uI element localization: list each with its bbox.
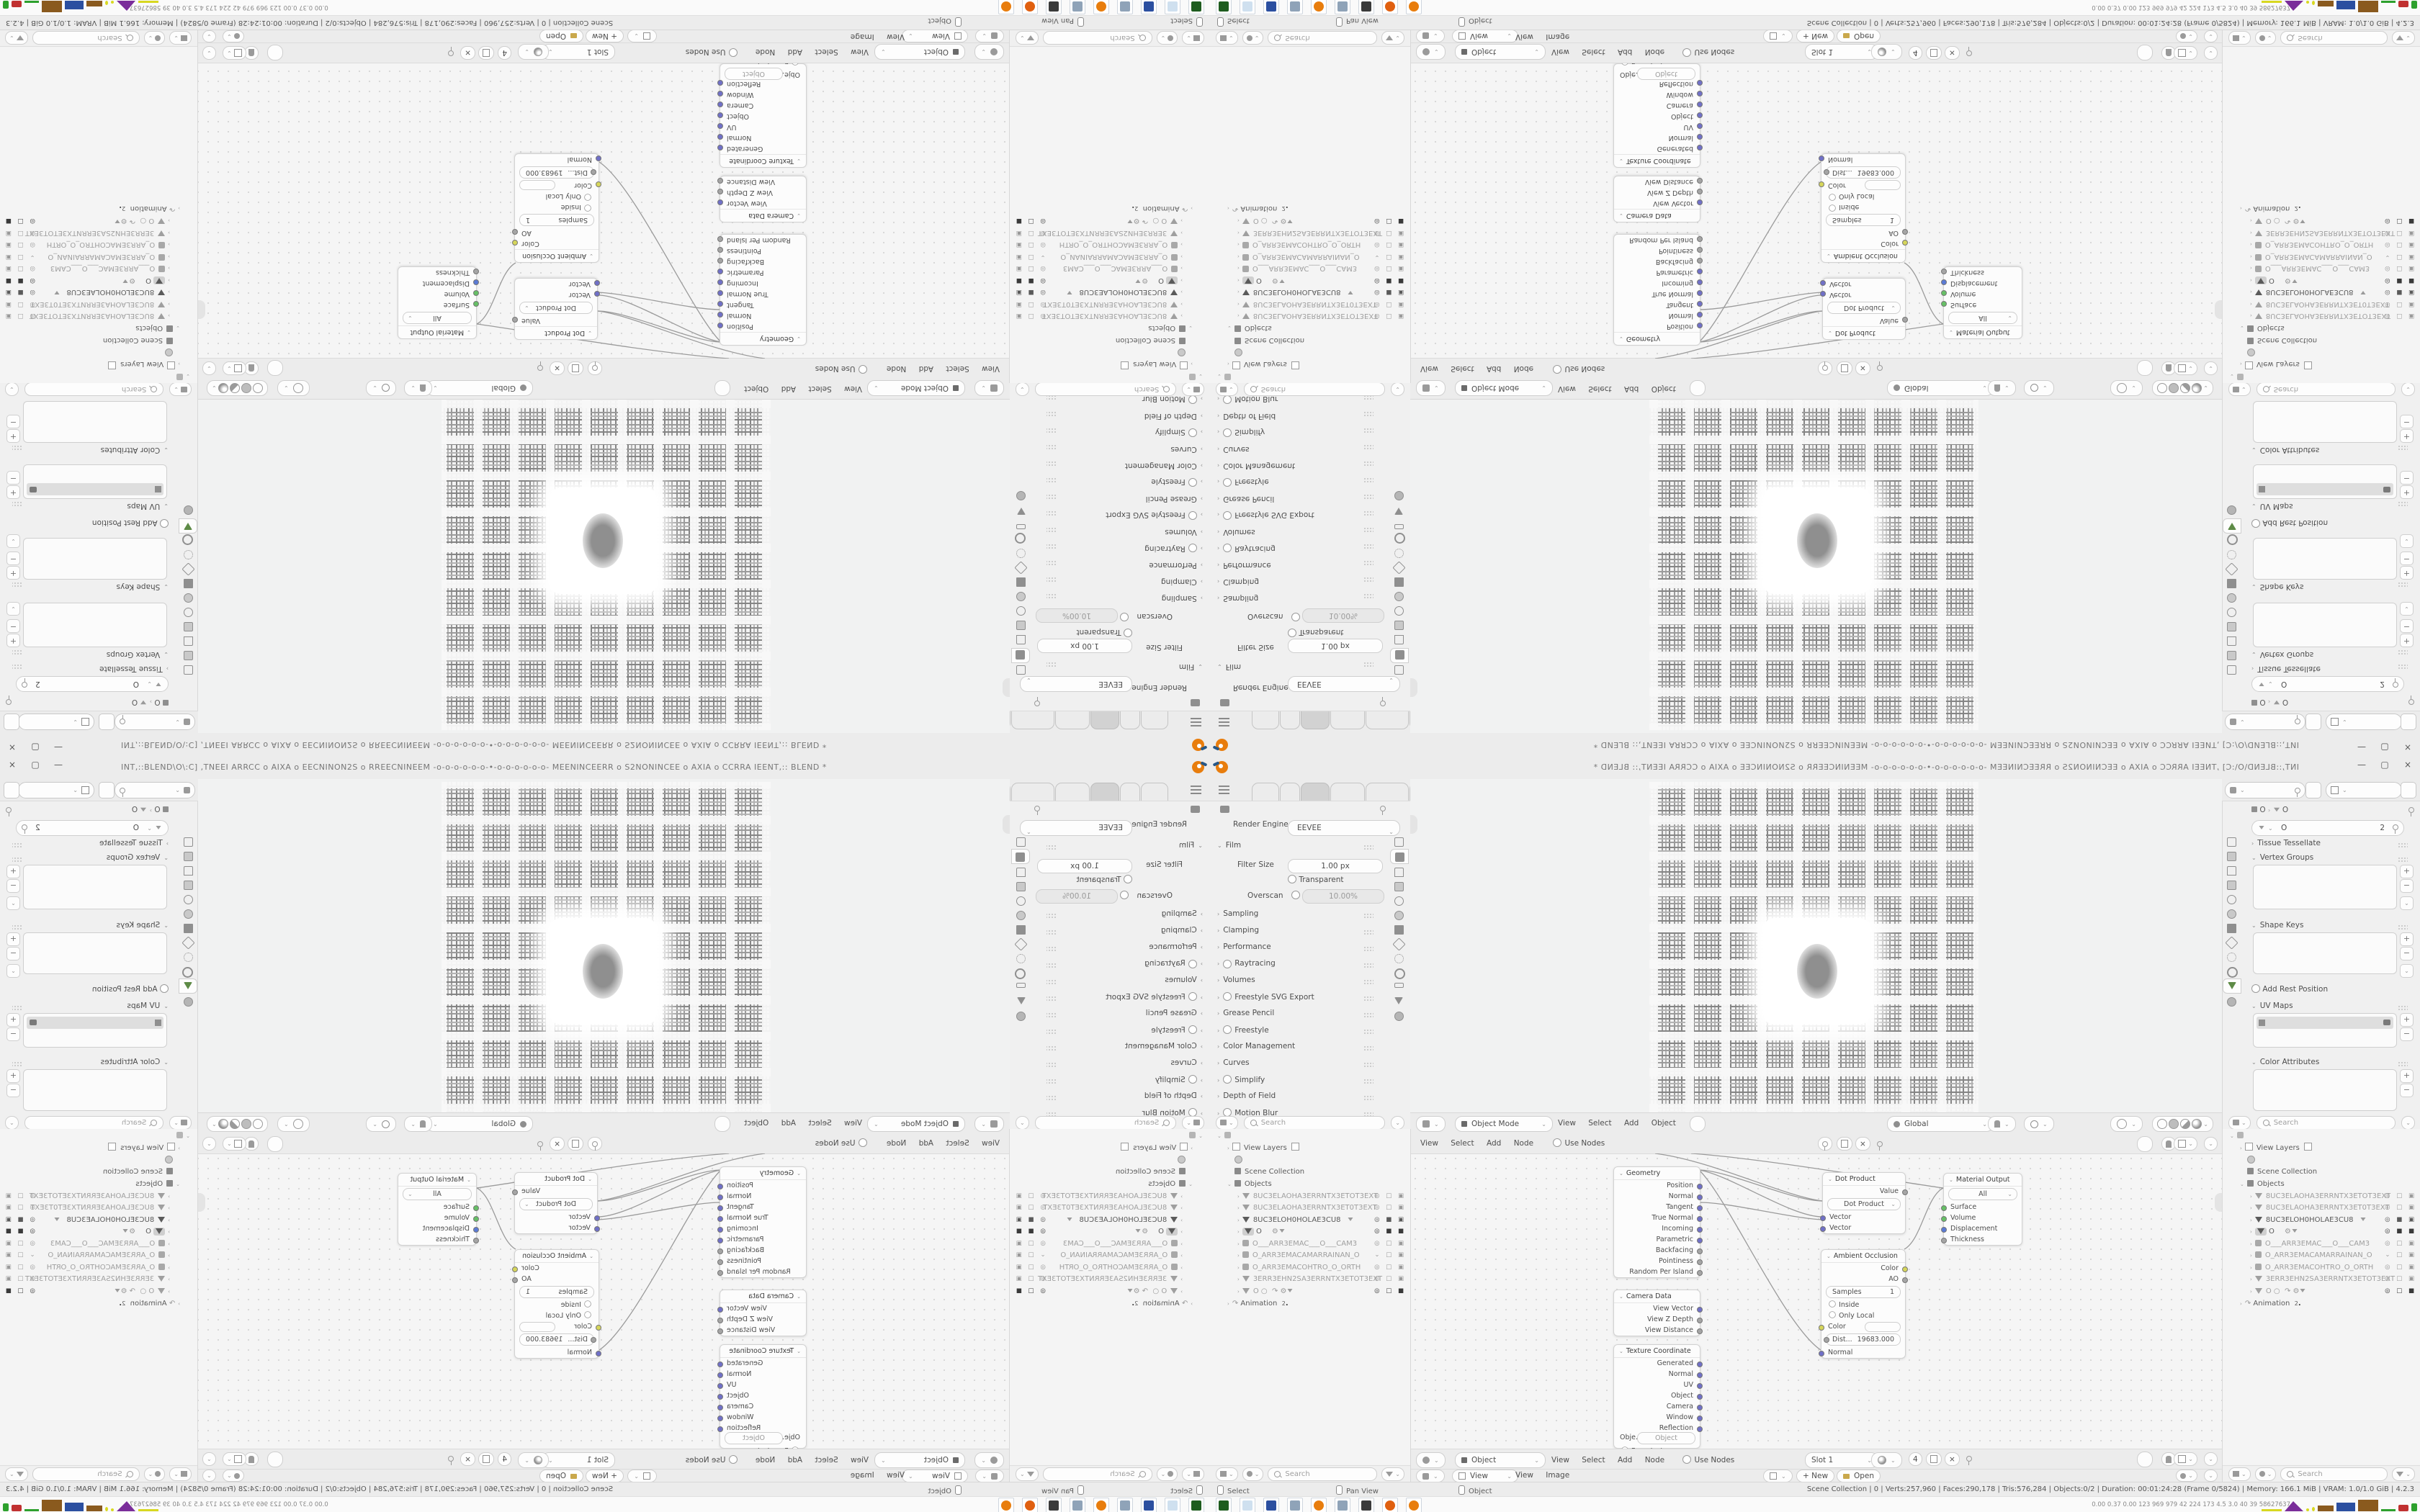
render-engine-select[interactable]: EEVEE⌄ <box>1288 820 1400 836</box>
tool-tab-icon[interactable] <box>180 834 197 848</box>
image-options-button[interactable]: ⌄ <box>2204 30 2218 42</box>
taskbar-app-blender[interactable] <box>1311 0 1327 14</box>
options-button[interactable]: ⌄ <box>1016 383 1029 397</box>
taskbar-app-blender2[interactable] <box>1406 0 1422 14</box>
mesh-name-field[interactable]: ⌄ O 2 <box>2251 676 2404 692</box>
breadcrumb-data[interactable]: O <box>2282 698 2288 706</box>
particles-tab-icon[interactable] <box>2223 950 2240 963</box>
outliner-root[interactable]: ⌄ <box>1013 369 1206 380</box>
open-image-button[interactable]: Open <box>1837 1470 1881 1482</box>
taskbar-app-calculator[interactable] <box>1287 0 1303 14</box>
outliner-object-row[interactable]: ›8UC3ELOH0HOLAE3CU8◎ ■ ▣ <box>1234 1216 1407 1227</box>
taskbar-app-blender[interactable] <box>1093 1498 1109 1512</box>
shape-key-specials-button[interactable]: ⌄ <box>2400 534 2414 548</box>
workspace-tab-active[interactable] <box>1301 783 1330 801</box>
panel-section[interactable]: ›Color Management <box>1217 1042 1379 1055</box>
taskbar-app-monitor[interactable] <box>1358 1498 1374 1512</box>
world-row[interactable] <box>2 346 173 356</box>
sidebar-toggle[interactable] <box>198 300 205 319</box>
panel-section[interactable]: ›Depth of Field <box>1041 408 1203 420</box>
vertex-group-specials-button[interactable]: ⌄ <box>6 602 20 616</box>
ao-samples-field[interactable]: Samples1 <box>519 1286 594 1298</box>
menu-add[interactable]: Add <box>1618 1456 1632 1464</box>
scene-tab-icon[interactable] <box>180 606 197 620</box>
overscan-field[interactable]: 10.00% <box>1302 608 1384 623</box>
image-view-mode-select[interactable]: View⌄ <box>902 1470 968 1482</box>
menu-select[interactable]: Select <box>1451 1139 1474 1148</box>
vertex-group-specials-button[interactable]: ⌄ <box>2400 602 2414 616</box>
output-tab-icon[interactable] <box>1013 865 1030 878</box>
search-input[interactable]: Search <box>24 383 164 397</box>
add-rest-position-toggle[interactable]: Add Rest Position <box>2251 515 2414 528</box>
taskbar-app-blender2[interactable] <box>1406 1498 1422 1512</box>
taskbar-app-monitor[interactable] <box>1046 0 1062 14</box>
outliner-object-row[interactable]: ›O ○ ↷ ⚙◎ □ ■ <box>2 1287 173 1298</box>
outliner-root[interactable]: ⌄ <box>2227 1132 2418 1143</box>
outliner-object-row-selected[interactable]: › O⚙◎ ■ ■ <box>1013 274 1186 284</box>
pin-icon[interactable] <box>1380 701 1386 706</box>
snapping-button[interactable] <box>244 46 259 60</box>
pin-icon[interactable] <box>537 365 543 371</box>
filter-size-field[interactable]: 1.00 px <box>1037 639 1132 653</box>
node-dot-product[interactable]: ⌄Dot Product Value Dot Product⌄ Vector V… <box>514 278 598 340</box>
new-image-button[interactable]: + New <box>586 30 624 42</box>
add-rest-position-toggle[interactable]: Add Rest Position <box>2251 984 2414 997</box>
node-ambient-occlusion[interactable]: ⌄Ambient Occlusion Color AO Samples1 Ins… <box>514 153 599 263</box>
menu-node[interactable]: Node <box>1514 1139 1533 1148</box>
panel-section[interactable]: ›Curves <box>1041 1058 1203 1071</box>
outliner-object-row[interactable]: ›8UC3ELAOHA3ERRNTX3ETOT3EXT◎ □ ▣ <box>1013 309 1186 320</box>
material-unlink-button[interactable]: × <box>1945 46 1960 60</box>
use-nodes-toggle[interactable]: Use Nodes <box>815 1139 856 1148</box>
options-button[interactable]: ⌄ <box>2401 383 2415 397</box>
view-layer-selector[interactable]: ⌄ <box>2326 714 2402 730</box>
overscan-field[interactable]: 10.00% <box>1036 889 1118 904</box>
use-nodes-toggle[interactable]: Use Nodes <box>1694 1456 1734 1464</box>
outliner-object-row[interactable]: ›O ○ ↷ ⚙◎ □ ■ <box>1013 214 1186 225</box>
node-texture-coordinate[interactable]: ⌄Texture Coordinate Generated Normal UV … <box>720 63 807 168</box>
options-button[interactable]: ⌄ <box>2204 361 2218 375</box>
filter-mode-button[interactable]: ⌄ <box>1157 32 1178 45</box>
proportional-edit-button[interactable]: ⌄ <box>366 380 396 396</box>
image-options-button[interactable]: ⌄ <box>202 30 216 42</box>
animation-row[interactable]: ›↷ Animation 2. <box>2 202 183 212</box>
menu-add[interactable]: Add <box>788 48 802 56</box>
outliner-object-row[interactable]: ›8UC3ELAOHA3ERRNTX3ETOT3EXT◎ □ ▣ <box>1013 1192 1186 1203</box>
uv-maps-list[interactable] <box>2253 1013 2397 1048</box>
gizmo-toggle[interactable] <box>267 360 283 376</box>
taskbar-app-notepad[interactable] <box>1165 0 1180 14</box>
node-geometry[interactable]: ⌄Geometry Position Normal Tangent True N… <box>1613 234 1700 346</box>
world-row[interactable] <box>1013 346 1186 356</box>
pin-icon[interactable] <box>2295 788 2300 793</box>
modifiers-tab-icon[interactable] <box>1013 562 1030 575</box>
outliner-camera-row[interactable]: ›O___ARR3EMAC___O___CAM3◎ □ ▣ <box>1234 1240 1407 1251</box>
outliner-object-row[interactable]: ›8UC3ELAOHA3ERRNTX3ET0T3EXT◎ □ ▣ <box>2 1204 173 1215</box>
panel-section[interactable]: ›Performance <box>1217 557 1379 570</box>
physics-tab-icon[interactable] <box>2223 534 2240 548</box>
film-panel-header[interactable]: ⌄Film <box>1041 658 1203 671</box>
options-button[interactable]: ⌄ <box>2204 1452 2218 1466</box>
search-input[interactable]: Search <box>32 1467 140 1481</box>
object-tab-icon[interactable] <box>180 921 197 935</box>
search-input[interactable]: Search <box>1035 383 1177 397</box>
panel-section[interactable]: ⌄Color Attributes <box>2251 441 2414 454</box>
wireframe-shading-icon[interactable] <box>253 1119 263 1129</box>
outliner-object-row[interactable]: ›3ERR3EHN2SA3ERRNTX3ETOT3EXT◎ □ ▣ <box>1013 1275 1186 1286</box>
menu-node[interactable]: Node <box>756 1456 775 1464</box>
close-button[interactable]: × <box>4 760 20 770</box>
tool-tab-icon[interactable] <box>1013 834 1030 848</box>
uv-map-row[interactable] <box>27 1017 163 1029</box>
menu-node[interactable]: Node <box>887 364 906 373</box>
image-options-button[interactable]: ⌄ <box>202 1470 216 1482</box>
uv-maps-list[interactable] <box>23 1013 167 1048</box>
outliner-object-row[interactable]: ›8UC3ELAOHA3ERRNTX3ET0T3EXT◎ □ ▣ <box>1013 1204 1186 1215</box>
display-mode-button[interactable]: ⌄ <box>1182 32 1204 45</box>
texcoord-object-field[interactable]: Object <box>725 68 783 80</box>
sidebar-toggle[interactable] <box>2215 1193 2222 1212</box>
editor-type-button[interactable]: ⌄ <box>974 380 1004 396</box>
breadcrumb-object[interactable]: O <box>2259 806 2265 814</box>
pin-icon[interactable] <box>1966 50 1972 56</box>
outliner-object-row[interactable]: ›3ERR3EHN2SA3ERRNTX3ETOT3EXT◎ □ ▣ <box>2 1275 173 1286</box>
viewlayer-tab-icon[interactable] <box>1390 619 1407 633</box>
render-tab-icon[interactable] <box>2223 849 2240 863</box>
render-tab-icon[interactable] <box>1390 648 1409 663</box>
workspace-tab[interactable] <box>1055 783 1090 801</box>
menu-add[interactable]: Add <box>788 1456 802 1464</box>
panel-section[interactable]: ›Curves <box>1217 1058 1379 1071</box>
material-tab-icon[interactable] <box>1013 490 1030 503</box>
film-panel-header[interactable]: ⌄Film <box>1217 658 1379 671</box>
panel-section[interactable]: ›Depth of Field <box>1041 1092 1203 1104</box>
panel-section[interactable]: ›Clamping <box>1041 926 1203 939</box>
data-tab-icon[interactable] <box>1390 994 1407 1008</box>
panel-section[interactable]: ›Volumes <box>1217 976 1379 989</box>
data-tab-icon[interactable] <box>1013 994 1030 1008</box>
color-attributes-list[interactable] <box>2253 401 2397 443</box>
shape-keys-list[interactable] <box>2253 932 2397 974</box>
ao-color-field[interactable] <box>519 1322 555 1332</box>
add-vertex-group-button[interactable]: + <box>2400 634 2414 647</box>
menu-view[interactable]: View <box>1515 1471 1533 1480</box>
menu-select[interactable]: Select <box>1582 1456 1605 1464</box>
outliner-object-row[interactable]: ›8UC3ELAOHA3ERRNTX3ET0T3EXT◎ □ ▣ <box>1234 1204 1407 1215</box>
object-tab-icon[interactable] <box>1390 922 1407 936</box>
outliner-object-row[interactable]: ›8UC3ELOH0HOLAE3CU8◎ ■ ▣ <box>1013 285 1186 296</box>
physics-tab-icon[interactable] <box>180 534 197 548</box>
slot-select[interactable]: Slot 1⌄ <box>1805 1452 1878 1468</box>
material-browse-button[interactable]: ⌄ <box>1871 44 1902 60</box>
viewlayer-tab-icon[interactable] <box>1390 879 1407 893</box>
editor-type-button[interactable]: ⌄ <box>974 1452 1004 1468</box>
options-button[interactable]: ⌄ <box>1391 383 1404 397</box>
filter-button[interactable]: ⌄ <box>1381 1467 1404 1481</box>
material-unlink-button[interactable]: × <box>1855 1137 1870 1151</box>
render-tab-icon[interactable] <box>2223 649 2240 663</box>
taskbar-app-terminal[interactable] <box>1188 1498 1204 1512</box>
tool-tab-icon[interactable] <box>2223 834 2240 848</box>
node-camera-data[interactable]: ⌄Camera Data View Vector View Z Depth Vi… <box>720 1290 807 1336</box>
panel-section[interactable]: ›Simplify <box>1041 424 1203 437</box>
outliner-object-row[interactable]: ›8UC3ELOH0HOLAE3CU8◎ ■ ▣ <box>1234 285 1407 296</box>
menu-view[interactable]: View <box>844 1119 862 1128</box>
shield-icon[interactable] <box>2393 682 2398 688</box>
material-copy-button[interactable] <box>1837 1137 1852 1151</box>
viewlayer-tab-icon[interactable] <box>2223 621 2240 634</box>
node-material-output[interactable]: ⌄Material Output All⌄ Surface Volume Dis… <box>398 1173 477 1246</box>
taskbar-app-calculator2[interactable] <box>1335 0 1350 14</box>
image-browse-button[interactable]: ⌄ <box>1763 30 1793 42</box>
texcoord-object-field[interactable]: Object <box>725 1432 783 1444</box>
color-attributes-list[interactable] <box>2253 1069 2397 1111</box>
search-input[interactable]: Search <box>2280 32 2388 45</box>
particles-tab-icon[interactable] <box>2223 549 2240 562</box>
search-input[interactable]: Search <box>2280 1467 2388 1481</box>
vertex-groups-list[interactable] <box>2253 603 2397 647</box>
shape-keys-list[interactable] <box>23 538 167 580</box>
panel-section[interactable]: ›Grease Pencil <box>1041 1009 1203 1022</box>
constraints-tab-icon[interactable] <box>1390 518 1407 532</box>
menu-view[interactable]: View <box>1551 48 1569 56</box>
world-row[interactable] <box>1013 1156 1186 1166</box>
search-input[interactable]: Search <box>2257 1116 2396 1130</box>
image-browse-button[interactable]: ⌄ <box>627 30 657 42</box>
gizmo-toggle[interactable] <box>2137 1452 2153 1467</box>
material-unlink-button[interactable]: × <box>550 1137 565 1151</box>
search-input[interactable]: Search <box>24 1116 164 1130</box>
mode-select[interactable]: Object Mode⌄ <box>1455 1116 1553 1132</box>
scene-collection-row[interactable]: Scene Collection <box>2 1168 173 1179</box>
menu-image[interactable]: Image <box>851 1471 874 1480</box>
panel-section[interactable]: ›Grease Pencil <box>1217 1009 1379 1022</box>
taskbar-app-calculator2[interactable] <box>1070 0 1085 14</box>
data-tab-icon[interactable] <box>179 978 197 994</box>
render-tab-icon[interactable] <box>180 849 197 863</box>
filter-button[interactable]: ⌄ <box>1016 1467 1039 1481</box>
material-tab-icon[interactable] <box>180 994 197 1008</box>
ao-color-field[interactable] <box>1865 1322 1901 1332</box>
transform-orientation-select[interactable]: Global⌄ <box>426 1116 533 1132</box>
display-mode-button[interactable]: ⌄ <box>1182 1116 1204 1130</box>
menu-node[interactable]: Node <box>1514 364 1533 373</box>
panel-section[interactable]: ›Grease Pencil <box>1217 490 1379 503</box>
panel-section[interactable]: ›Clamping <box>1217 926 1379 939</box>
solid-shading-icon[interactable] <box>2169 1119 2179 1129</box>
material-tab-icon[interactable] <box>2223 994 2240 1008</box>
scene-selector[interactable]: ⌄ <box>115 714 195 730</box>
node-material-output[interactable]: ⌄Material Output All⌄ Surface Volume Dis… <box>1943 266 2022 339</box>
shader-context-select[interactable]: Object⌄ <box>1455 1452 1546 1468</box>
panel-section[interactable]: ›Color Management <box>1041 457 1203 470</box>
use-nodes-toggle[interactable]: Use Nodes <box>1564 1139 1605 1148</box>
pin-icon[interactable] <box>1877 1141 1883 1147</box>
outliner-camera-row[interactable]: ›O___ARR3EMAC___O___CAM3◎ □ ▣ <box>1013 1240 1186 1251</box>
outliner-root[interactable]: ⌄ <box>1214 1132 1407 1143</box>
maximize-button[interactable]: ▢ <box>2377 742 2393 752</box>
display-mode-button[interactable]: ⌄ <box>1216 32 1238 45</box>
view-layer-selector[interactable]: ⌄ <box>18 714 94 730</box>
menu-add[interactable]: Add <box>1487 364 1501 373</box>
node-camera-data[interactable]: ⌄Camera Data View Vector View Z Depth Vi… <box>1613 176 1700 222</box>
output-tab-icon[interactable] <box>1013 634 1030 647</box>
filter-size-field[interactable]: 1.00 px <box>1037 859 1132 873</box>
tool-options-button[interactable] <box>1690 1116 1706 1132</box>
shuffle-button[interactable]: ⌄ <box>223 1470 244 1482</box>
search-input[interactable]: Search <box>1244 383 1386 397</box>
menu-view[interactable]: View <box>1420 1139 1438 1148</box>
outliner-object-row[interactable]: ›8UC3ELAOHA3ERRNTX3ETOT3EXT◎ □ ▣ <box>2247 309 2418 320</box>
shuffle-button[interactable]: ⌄ <box>2176 30 2197 42</box>
constraints-tab-icon[interactable] <box>1390 980 1407 994</box>
remove-shape-key-button[interactable]: − <box>2400 947 2414 960</box>
close-button[interactable]: × <box>4 742 20 752</box>
users-count-button[interactable]: 2 <box>35 821 40 835</box>
outliner-camera-row[interactable]: ›O_ARR3EMACOHTRO_O_ORTH◎ □ ▣ <box>2247 1264 2418 1274</box>
scene-collection-row[interactable]: Scene Collection <box>2247 1168 2418 1179</box>
shape-key-specials-button[interactable]: ⌄ <box>6 534 20 548</box>
overlays-button[interactable]: ⌄ <box>277 380 310 396</box>
solid-shading-icon[interactable] <box>241 1119 251 1129</box>
outliner-object-row[interactable]: ›8UC3ELAOHA3ERRNTX3ET0T3EXT◎ □ ▣ <box>1013 297 1186 308</box>
workspace-tab[interactable] <box>1011 711 1054 729</box>
color-attributes-list[interactable] <box>23 1069 167 1111</box>
filter-mode-button[interactable]: ⌄ <box>1242 32 1264 45</box>
outliner-camera-row[interactable]: ›O_ARR3EMACOHTRO_O_ORTH◎ □ ▣ <box>1013 1264 1186 1274</box>
panel-section[interactable]: ›Freestyle SVG Export <box>1217 992 1379 1005</box>
editor-type-button[interactable]: ⌄ <box>975 1470 1004 1482</box>
remove-vertex-group-button[interactable]: − <box>6 879 20 893</box>
outliner-camera-row[interactable]: ›O___ARR3EMAC___O___CAM3◎ □ ▣ <box>2247 1240 2418 1251</box>
ao-distance-field[interactable]: Dist...19683.000 <box>519 1333 594 1346</box>
uv-map-row[interactable] <box>27 483 163 495</box>
tool-tab-icon[interactable] <box>1013 664 1030 678</box>
texcoord-object-field[interactable]: Object <box>1637 68 1695 80</box>
panel-section[interactable]: ›Volumes <box>1217 523 1379 536</box>
outliner-object-row[interactable]: ›3ERR3EHN2SA3ERRNTX3ETOT3EXT◎ □ ▣ <box>2247 1275 2418 1286</box>
viewlayer-tab-icon[interactable] <box>1013 619 1030 633</box>
display-mode-button[interactable]: ⌄ <box>1182 1467 1204 1481</box>
render-engine-select[interactable]: EEVEE⌄ <box>1020 820 1132 836</box>
outliner-camera-row[interactable]: ›O_ARR3EMACAMARRAINAN_O⌄ □ ▣ <box>1234 250 1407 261</box>
data-tab-icon[interactable] <box>1013 504 1030 518</box>
material-copy-button[interactable] <box>568 1137 583 1151</box>
node-canvas[interactable]: ⌄Geometry Position Normal Tangent True N… <box>198 1153 1010 1449</box>
menu-object[interactable]: Object <box>1652 384 1676 393</box>
scene-tab-icon[interactable] <box>1013 894 1030 907</box>
outliner-object-row[interactable]: ›O ○ ↷ ⚙◎ □ ■ <box>2247 214 2418 225</box>
display-mode-button[interactable]: ⌄ <box>169 1467 192 1481</box>
material-shading-icon[interactable] <box>2180 1119 2190 1129</box>
remove-shape-key-button[interactable]: − <box>6 947 20 960</box>
outliner-object-row-selected[interactable]: › O⚙◎ ■ ■ <box>2247 1228 2418 1238</box>
panel-section[interactable]: ›Curves <box>1041 441 1203 454</box>
add-vertex-group-button[interactable]: + <box>6 634 20 647</box>
editor-type-button[interactable]: ⌄ <box>1416 380 1446 396</box>
maximize-button[interactable]: ▢ <box>27 742 43 752</box>
taskbar-app-notepad[interactable] <box>1240 1498 1255 1512</box>
open-image-button[interactable]: Open <box>1837 30 1881 42</box>
render-engine-select[interactable]: EEVEE⌄ <box>1288 676 1400 692</box>
overscan-toggle[interactable] <box>1120 891 1129 899</box>
menu-view[interactable]: View <box>1515 32 1533 41</box>
menu-object[interactable]: Object <box>1652 1119 1676 1128</box>
physics-tab-icon[interactable] <box>1013 966 1030 979</box>
data-tab-icon[interactable] <box>1390 504 1407 518</box>
search-input[interactable]: Search <box>1043 1467 1152 1481</box>
options-button[interactable]: ⌄ <box>5 1116 19 1130</box>
display-mode-button[interactable]: ⌄ <box>1216 383 1238 397</box>
menu-select[interactable]: Select <box>1588 1119 1611 1128</box>
output-target-select[interactable]: All⌄ <box>403 312 472 324</box>
editor-type-button[interactable]: ⌄ <box>1416 44 1446 60</box>
menu-view[interactable]: View <box>851 48 869 56</box>
outliner-camera-row[interactable]: ›O_ARR3EMACOHTRO_O_ORTH◎ □ ▣ <box>1234 238 1407 248</box>
material-tab-icon[interactable] <box>1390 490 1407 503</box>
material-tab-icon[interactable] <box>1013 1009 1030 1022</box>
taskbar-app-calculator2[interactable] <box>1335 1498 1350 1512</box>
viewlayer-tab-icon[interactable] <box>2223 878 2240 891</box>
workspace-tab-active[interactable] <box>1090 711 1119 729</box>
pin-icon[interactable] <box>1380 806 1386 811</box>
pin-icon[interactable] <box>448 50 454 56</box>
options-button[interactable]: ⌄ <box>202 361 216 375</box>
filter-button[interactable]: ⌄ <box>2392 32 2415 45</box>
objects-collection-row[interactable]: ⌄Objects <box>2 321 183 332</box>
close-button[interactable]: × <box>2400 760 2416 770</box>
add-color-attribute-button[interactable]: + <box>6 1069 20 1083</box>
material-copy-button[interactable] <box>1926 1452 1942 1466</box>
modifiers-tab-icon[interactable] <box>2223 935 2240 949</box>
outliner-object-row[interactable]: ›3ERR3EHN2SA3ERRNTX3ETOT3EXT◎ □ ▣ <box>2247 226 2418 237</box>
render-tab-icon[interactable] <box>1011 849 1030 864</box>
transform-orientation-select[interactable]: Global⌄ <box>426 380 533 396</box>
taskbar-app-save[interactable] <box>1141 0 1157 14</box>
panel-section[interactable]: ›Performance <box>1041 557 1203 570</box>
scene-collection-row[interactable]: Scene Collection <box>2 333 173 344</box>
overscan-toggle[interactable] <box>1291 613 1300 621</box>
material-copy-button[interactable] <box>478 1452 494 1466</box>
rendered-shading-icon[interactable] <box>218 383 228 393</box>
pin-icon[interactable] <box>537 1141 543 1147</box>
panel-section[interactable]: ›Sampling <box>1217 909 1379 922</box>
material-browse-button[interactable]: ⌄ <box>518 44 549 60</box>
proportional-edit-button[interactable]: ⌄ <box>2024 380 2054 396</box>
display-mode-button[interactable]: ⌄ <box>2228 383 2251 397</box>
modifiers-tab-icon[interactable] <box>2223 563 2240 577</box>
taskbar-app-firefox[interactable] <box>1382 1498 1398 1512</box>
physics-tab-icon[interactable] <box>180 964 197 978</box>
scene-tab-icon[interactable] <box>1390 894 1407 907</box>
mesh-name-field[interactable]: ⌄ O 2 <box>16 820 169 836</box>
menu-view[interactable]: View <box>844 384 862 393</box>
gizmo-toggle[interactable] <box>267 1136 283 1152</box>
node-geometry[interactable]: ⌄Geometry Position Normal Tangent True N… <box>1613 1166 1700 1278</box>
tool-tab-icon[interactable] <box>1390 664 1407 678</box>
remove-color-attribute-button[interactable]: − <box>6 1084 20 1097</box>
menu-view[interactable]: View <box>1551 1456 1569 1464</box>
image-browse-button[interactable]: ⌄ <box>1763 1470 1793 1482</box>
object-tab-icon[interactable] <box>1013 922 1030 936</box>
editor-type-button[interactable]: ⌄ <box>1416 30 1445 42</box>
node-texture-coordinate[interactable]: ⌄Texture Coordinate Generated Normal UV … <box>1613 63 1700 168</box>
object-tab-icon[interactable] <box>2223 577 2240 591</box>
minimize-button[interactable]: — <box>50 742 66 752</box>
panel-section[interactable]: ›Depth of Field <box>1217 408 1379 420</box>
scene-collection-row[interactable]: Scene Collection <box>1234 1168 1407 1179</box>
display-mode-button[interactable]: ⌄ <box>2228 1116 2251 1130</box>
